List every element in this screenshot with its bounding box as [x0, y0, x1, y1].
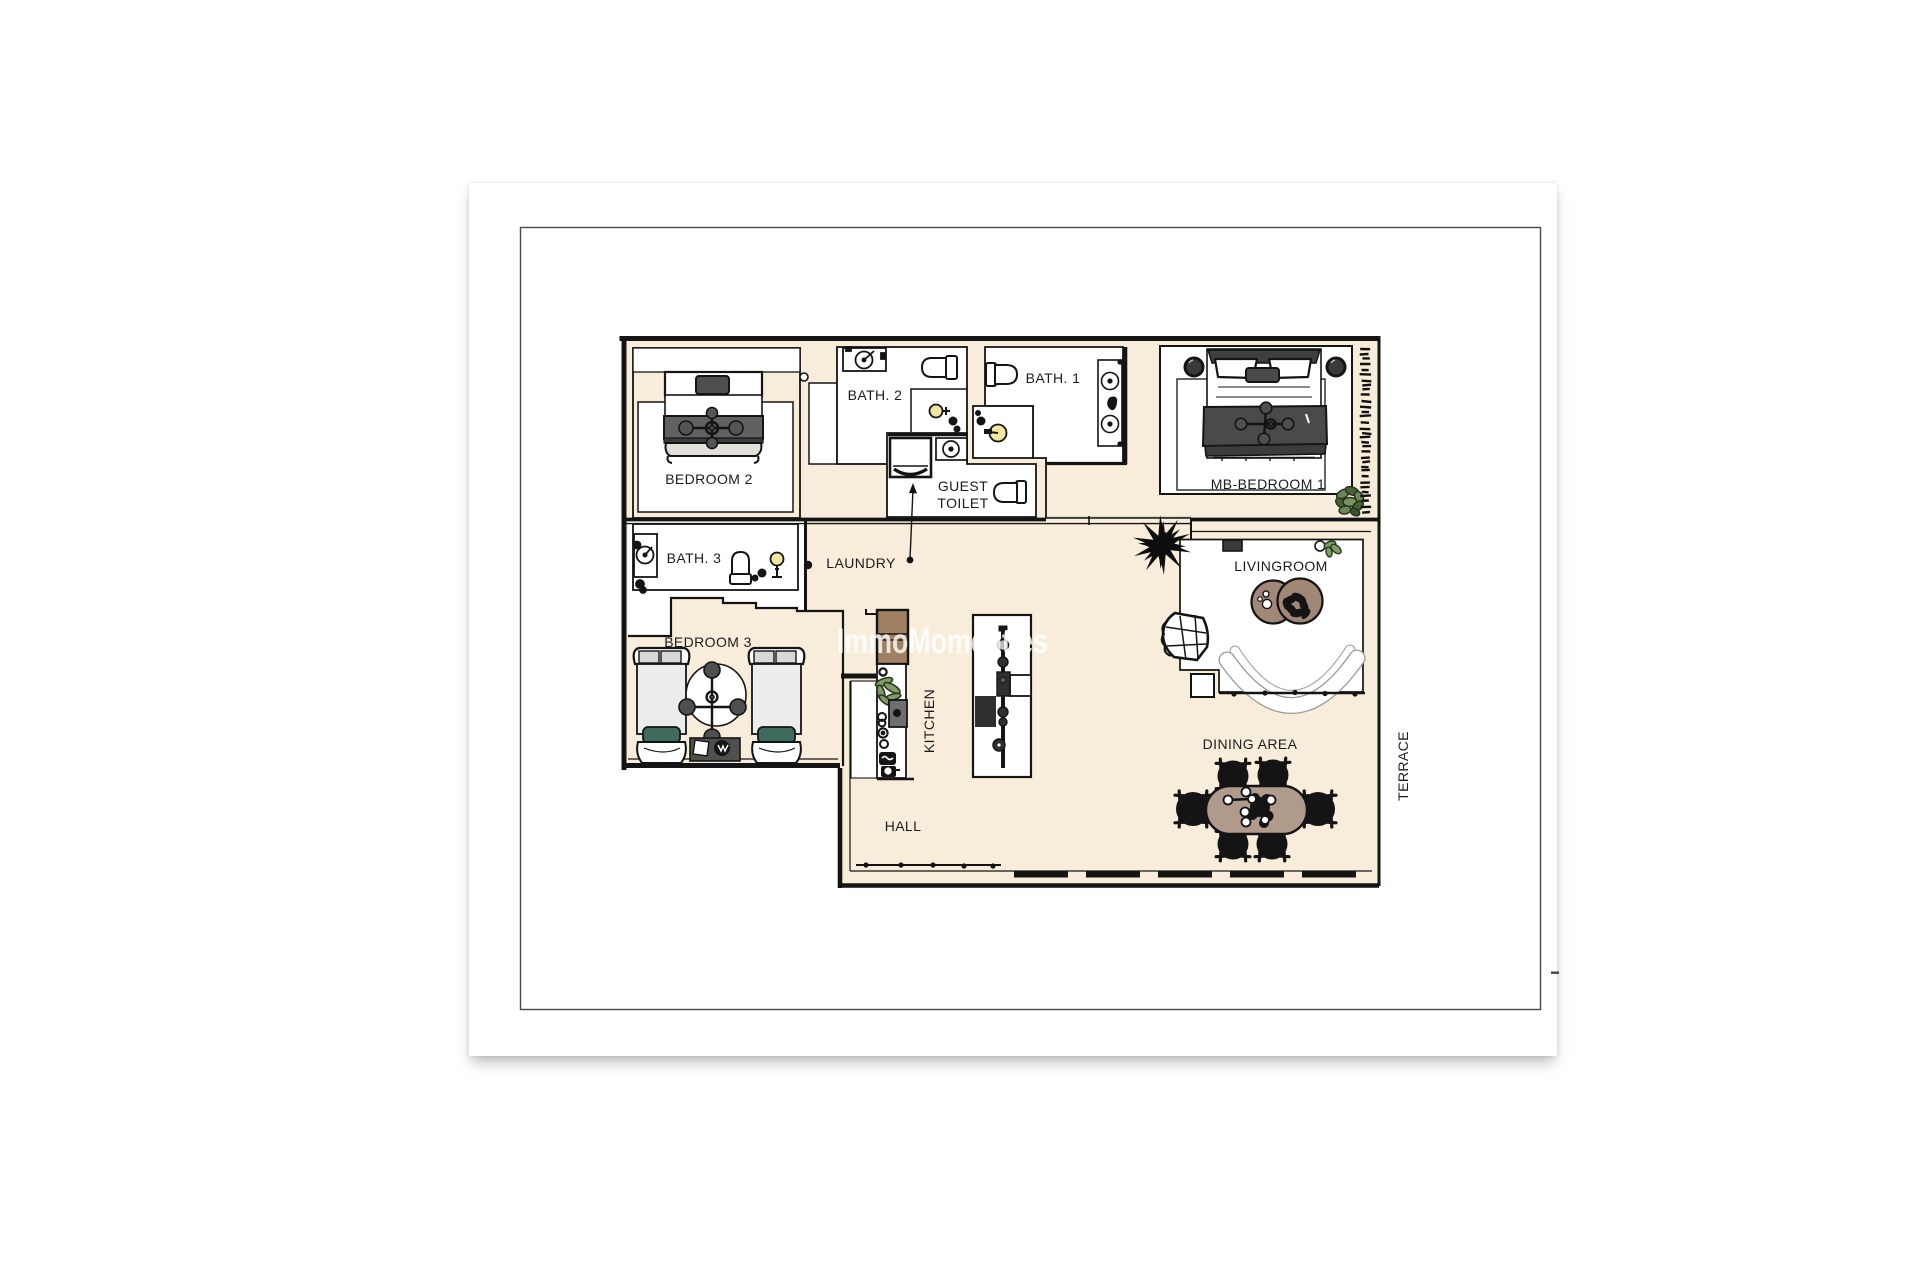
- svg-text:BATH. 1: BATH. 1: [1026, 370, 1081, 386]
- svg-text:GUEST: GUEST: [938, 478, 988, 494]
- svg-text:LAUNDRY: LAUNDRY: [826, 555, 896, 571]
- svg-text:KITCHEN: KITCHEN: [921, 689, 937, 753]
- svg-text:TERRACE: TERRACE: [1395, 731, 1411, 801]
- svg-text:BATH. 2: BATH. 2: [848, 387, 903, 403]
- svg-text:DINING AREA: DINING AREA: [1203, 736, 1298, 752]
- svg-text:ImmoMoment.es: ImmoMoment.es: [837, 622, 1048, 661]
- svg-text:BEDROOM 3: BEDROOM 3: [664, 634, 752, 650]
- svg-text:BATH. 3: BATH. 3: [667, 550, 722, 566]
- svg-text:MB-BEDROOM 1: MB-BEDROOM 1: [1211, 476, 1325, 492]
- svg-text:TOILET: TOILET: [937, 495, 988, 511]
- svg-text:LIVINGROOM: LIVINGROOM: [1234, 558, 1327, 574]
- svg-text:BEDROOM 2: BEDROOM 2: [665, 471, 753, 487]
- svg-text:HALL: HALL: [885, 818, 922, 834]
